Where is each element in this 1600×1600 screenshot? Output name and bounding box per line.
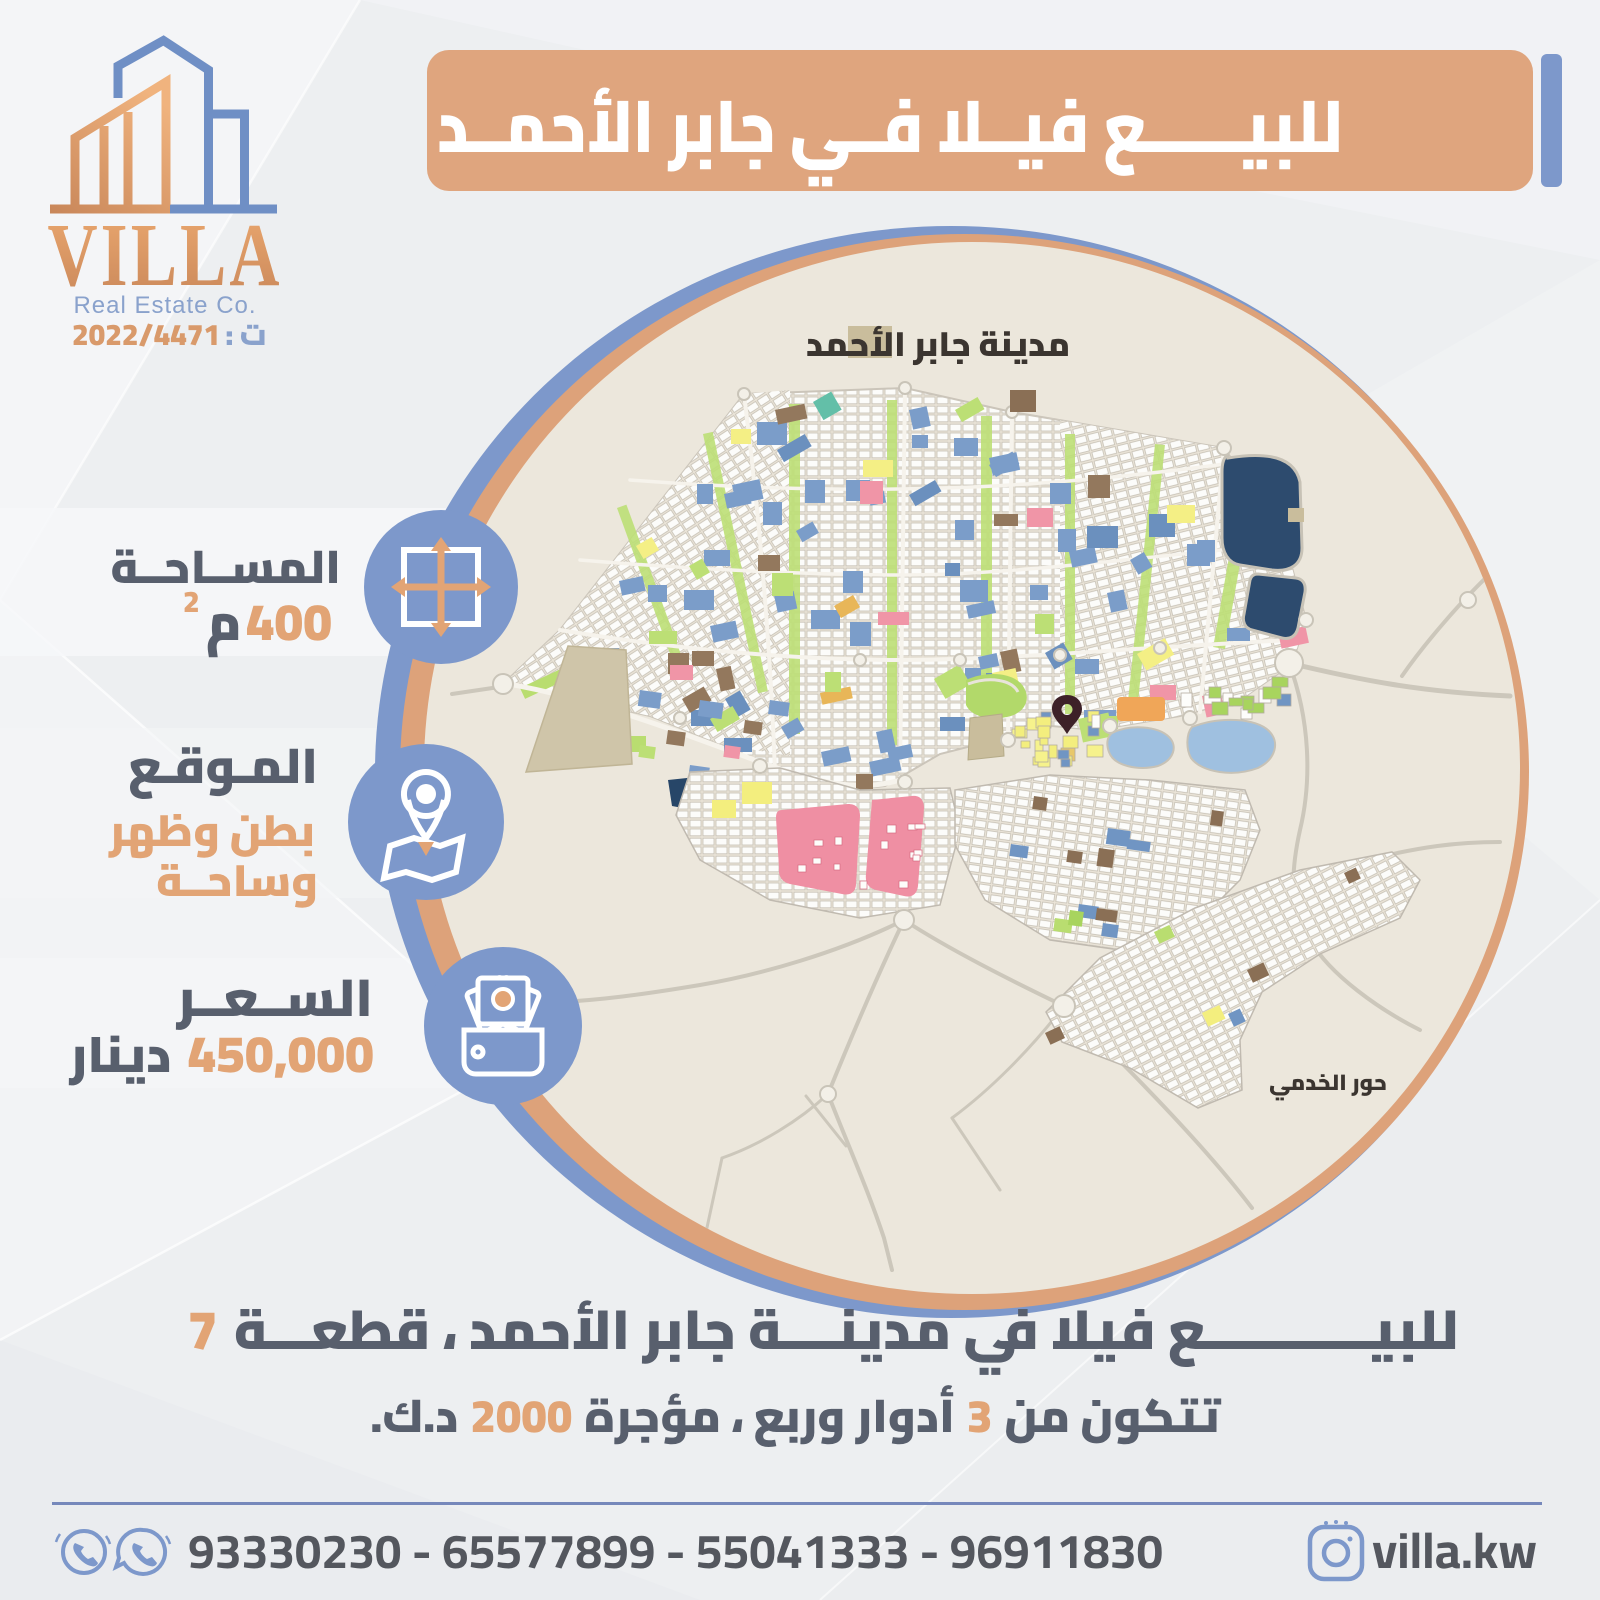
svg-text:VILLA: VILLA [48, 206, 283, 305]
svg-text:Real Estate Co.: Real Estate Co. [73, 292, 256, 319]
